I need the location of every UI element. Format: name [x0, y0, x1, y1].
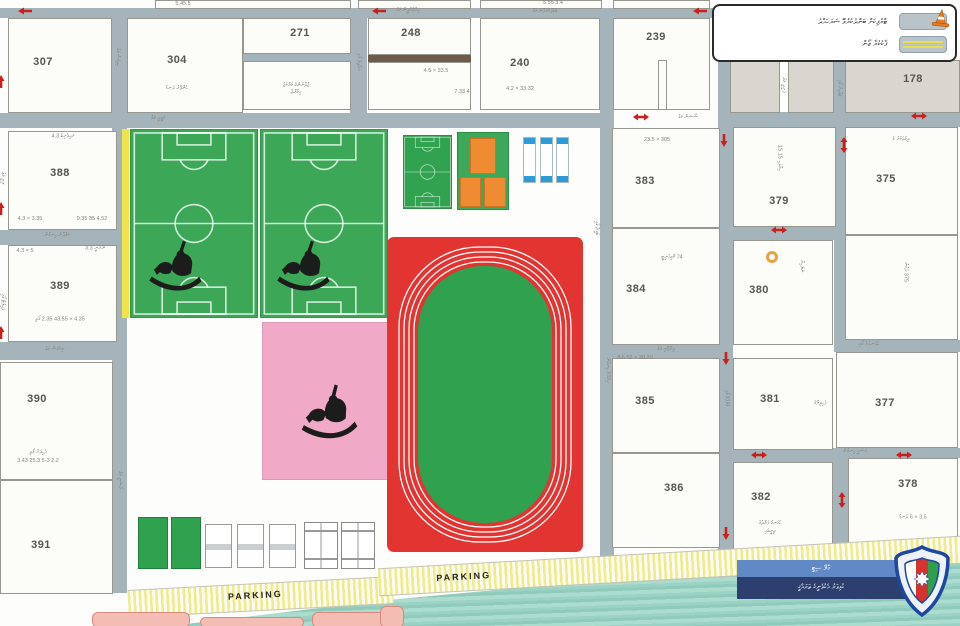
block-380 — [733, 240, 833, 345]
traffic-direction-arrow-down — [722, 527, 730, 540]
map-text-label: ޒުވާނުންގެ މަރުކަޒު — [283, 83, 310, 90]
map-text-label: 3.35 × 4.3 — [18, 216, 43, 222]
map-text-label: 375 ދެކުނު — [902, 262, 909, 282]
map-text-label: ފިޔާތޮށި މަގު — [657, 347, 675, 354]
orange-court — [460, 177, 481, 207]
map-text-label: 2.2 5-3 25.3 3.43 — [17, 458, 59, 464]
block-number-388: 388 — [50, 167, 70, 179]
legend: ޓްރެފިކަށް ބަންދުކުރެވޭ ސަރަހައްދު ޕާކުކ… — [712, 4, 957, 62]
running-track — [387, 237, 583, 552]
traffic-direction-arrow-up — [0, 202, 5, 215]
block-378 — [848, 458, 958, 546]
city-plan-map: 3073042712482402391783883893903913833843… — [0, 0, 960, 626]
map-text-label: ނޫރާނީ 3.3 — [85, 246, 105, 253]
city-crest-logo — [892, 545, 952, 617]
waterfront-building — [92, 612, 190, 626]
legend-row-parking: ޕާކުކުރާ ޒޯން — [722, 36, 947, 53]
map-text-label: ވައިލެޓް ގޯޅި — [0, 294, 6, 311]
map-text-label: މަޖީދީ މަގު — [151, 116, 165, 123]
map-text-label: ހިތިގަސް މަގު — [114, 48, 121, 66]
legend-label: ޕާކުކުރާ ޒޯން — [862, 39, 887, 49]
legend-row-closed-area: ޓްރެފިކަށް ބަންދުކުރެވޭ ސަރަހައްދު — [722, 13, 947, 30]
traffic-cone-icon — [928, 7, 954, 31]
orange-court — [484, 177, 506, 207]
map-text-label: 3.4 5.55 — [543, 0, 563, 6]
waterfront-building — [380, 606, 404, 626]
street — [0, 113, 614, 128]
excavator-silhouette-icon — [273, 236, 335, 294]
blue-capped-court — [523, 137, 536, 183]
map-text-label: ބޮޑުތަކުރުފާނު މަގު — [533, 9, 558, 16]
block-unlabeled — [368, 62, 471, 110]
map-text-label: 5 × 4.3 — [17, 248, 34, 254]
map-text-label: 33.5 × 4.5 — [424, 68, 449, 74]
map-text-label: ފަރީދީ މަގު — [780, 77, 787, 92]
closed-lane-yellow-stripe — [122, 129, 129, 318]
map-text-label: ހުޅަނގު ފަރާތުގެ — [759, 521, 782, 528]
block-number-379: 379 — [769, 195, 789, 207]
traffic-direction-arrow-up — [0, 326, 5, 339]
map-text-label: އިމާރާތް — [291, 90, 301, 97]
block-number-271: 271 — [290, 27, 310, 39]
net-court — [304, 522, 338, 569]
block-number-385: 385 — [635, 395, 655, 407]
map-text-label: ފެހިވިލާގެ — [814, 401, 826, 408]
map-text-label: 20.20 × 8.6.52 — [617, 355, 652, 361]
block-386 — [612, 453, 720, 548]
map-text-label: ފެހިފަރު ގޯތި — [30, 450, 47, 457]
block-number-378: 378 — [898, 478, 918, 490]
block-number-178: 178 — [903, 73, 923, 85]
block-178 — [845, 60, 960, 113]
orange-courts-pad — [457, 132, 509, 210]
traffic-direction-arrow-h2 — [633, 113, 649, 121]
map-text-label: ސޯސަން މަގު — [678, 115, 698, 122]
closed-area-symbol — [899, 13, 947, 30]
map-text-label: 4 7.33 — [454, 89, 469, 95]
small-white-court — [205, 524, 232, 568]
map-text-label: ދިގުތަކުރު ގެ — [892, 137, 909, 144]
block-383 — [612, 128, 720, 228]
small-green-court — [171, 517, 201, 569]
small-green-court — [138, 517, 168, 569]
map-text-label: ހެންވޭރު ދަނޑު — [166, 86, 188, 93]
map-text-label: ހުވަނދުމާ ގޯޅި — [859, 342, 879, 349]
traffic-direction-arrow-down — [722, 352, 730, 365]
block-number-391: 391 — [31, 539, 51, 551]
parking-lines-symbol — [899, 36, 947, 53]
traffic-direction-arrow-h2 — [911, 112, 927, 120]
block-240 — [480, 18, 600, 110]
excavator-silhouette-icon — [296, 378, 362, 444]
blue-capped-court — [540, 137, 553, 183]
block-number-384: 384 — [626, 283, 646, 295]
block-number-389: 389 — [50, 280, 70, 292]
block-number-386: 386 — [664, 482, 684, 494]
block-number-382: 382 — [751, 491, 771, 503]
map-marker-circle — [766, 251, 778, 263]
block-unlabeled — [845, 235, 958, 340]
traffic-direction-arrow-v2 — [838, 492, 846, 508]
map-text-label: ނިކަގަސް މަގު — [45, 347, 64, 354]
street — [368, 55, 471, 62]
block-number-304: 304 — [167, 54, 187, 66]
block-number-380: 380 — [749, 284, 769, 296]
blue-capped-court — [556, 137, 569, 183]
block-unlabeled — [730, 60, 780, 113]
map-text-label: 5.45.5 — [175, 1, 190, 7]
block-number-375: 375 — [876, 173, 896, 185]
traffic-direction-arrow-down — [720, 134, 728, 147]
map-text-label: ރޯޝަނީ މަގު — [116, 471, 123, 489]
practice-pitch — [403, 132, 452, 212]
waterfront-building — [200, 617, 304, 626]
excavator-silhouette-icon — [145, 236, 207, 294]
traffic-direction-arrow-v2 — [840, 137, 848, 153]
parking-label: PARKING — [228, 589, 283, 602]
traffic-direction-arrow-h2 — [896, 451, 912, 459]
block-379 — [733, 127, 836, 227]
map-text-label: ނަލަހިޔާ — [798, 260, 805, 272]
map-text-label: 305 × 23.5 — [644, 137, 670, 143]
traffic-direction-arrow-h2 — [751, 451, 767, 459]
map-text-label: ރައިވެރިބެ 4.3 — [51, 134, 74, 141]
block-number-240: 240 — [510, 57, 530, 69]
map-text-label: 3.5 × 6 ދަނޑު — [899, 515, 926, 522]
map-text-label: ޖަވާހިރު ގޯޅި — [836, 80, 843, 96]
block-377 — [836, 352, 958, 448]
block-389 — [8, 245, 117, 342]
banner-line-1: މާލޭ ސިޓީ — [737, 560, 905, 577]
map-text-label: ރަތްވިލާ ގޯޅި — [355, 53, 362, 70]
block-382 — [733, 462, 833, 553]
block-unlabeled — [658, 60, 667, 110]
block-number-381: 381 — [760, 393, 780, 405]
traffic-direction-arrow-left — [18, 7, 32, 15]
traffic-direction-arrow-left — [372, 7, 386, 15]
traffic-direction-arrow-h2 — [771, 226, 787, 234]
map-text-label: ތިރީބައި — [765, 529, 776, 536]
parking-label: PARKING — [436, 570, 491, 583]
map-text-label: ގުލްފާމް ގޯޅި — [723, 390, 730, 406]
small-white-court — [269, 524, 296, 568]
block-number-307: 307 — [33, 56, 53, 68]
street — [718, 450, 848, 462]
banner-line-2: ކުޅިވަރު އެކުވެނީގެ ތަރައްޤީ — [737, 577, 905, 599]
block-number-377: 377 — [875, 397, 895, 409]
map-text-label: 33.32 × 4.2 — [506, 86, 534, 92]
traffic-direction-arrow-left — [693, 7, 707, 15]
small-white-court — [237, 524, 264, 568]
map-text-label: އަސަރީ ހިނގުން — [843, 449, 867, 456]
map-text-label: އިއްޒުއްދީން މަގު — [396, 8, 420, 15]
net-court — [341, 522, 375, 569]
block-unlabeled — [788, 60, 834, 113]
map-text-label: 4.52 35 9.35 — [77, 216, 108, 222]
map-text-label: 4.35 × 43.55 2.35 ގޯތި — [35, 317, 85, 324]
street — [243, 54, 351, 61]
block-307 — [8, 18, 112, 113]
traffic-direction-arrow-up — [0, 75, 5, 88]
block-number-383: 383 — [635, 175, 655, 187]
map-text-label: ހިޔާވަހި 15.15 — [776, 145, 783, 171]
block-number-239: 239 — [646, 31, 666, 43]
block-number-248: 248 — [401, 27, 421, 39]
block-number-390: 390 — [27, 393, 47, 405]
orange-court — [470, 138, 496, 174]
map-text-label: ކަލާފާނު ހިނގުން — [44, 233, 69, 240]
block-385 — [612, 358, 720, 453]
map-text-label: އިރުދޭމާ ހިނގުން — [604, 358, 611, 383]
legend-label: ޓްރެފިކަށް ބަންދުކުރެވޭ ސަރަހައްދު — [818, 17, 887, 27]
title-banner: މާލޭ ސިޓީ ކުޅިވަރު އެކުވެނީގެ ތަރައްޤީ — [737, 560, 905, 599]
map-text-label: 74 ކޮމިއުނިޓީ — [661, 255, 682, 262]
map-text-label: ބަގީޗާ ގޯޅި — [593, 221, 600, 236]
map-text-label: ލިލީ މަގު — [0, 172, 6, 184]
block-391 — [0, 480, 113, 594]
